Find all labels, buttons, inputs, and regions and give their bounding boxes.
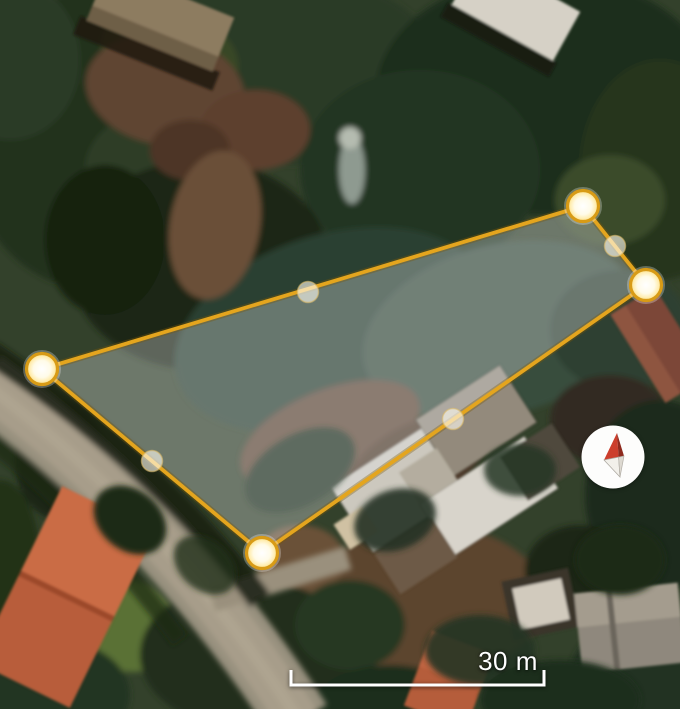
scale-bar-label: 30 m xyxy=(458,646,558,677)
midpoint-handle[interactable] xyxy=(443,409,464,430)
compass-button[interactable] xyxy=(580,424,646,490)
vertex-handle[interactable] xyxy=(631,270,662,301)
north-arrow-icon xyxy=(580,424,646,490)
vertex-handle[interactable] xyxy=(247,538,278,569)
satellite-map-view: 30 m xyxy=(0,0,680,709)
vertex-handle[interactable] xyxy=(568,191,599,222)
scale-bar: 30 m xyxy=(280,645,580,705)
midpoint-handle[interactable] xyxy=(605,236,626,257)
parcel-area[interactable] xyxy=(42,206,646,553)
vertex-handle[interactable] xyxy=(27,354,58,385)
parcel-polygon-layer xyxy=(0,0,680,709)
midpoint-handle[interactable] xyxy=(142,451,163,472)
midpoint-handle[interactable] xyxy=(298,282,319,303)
